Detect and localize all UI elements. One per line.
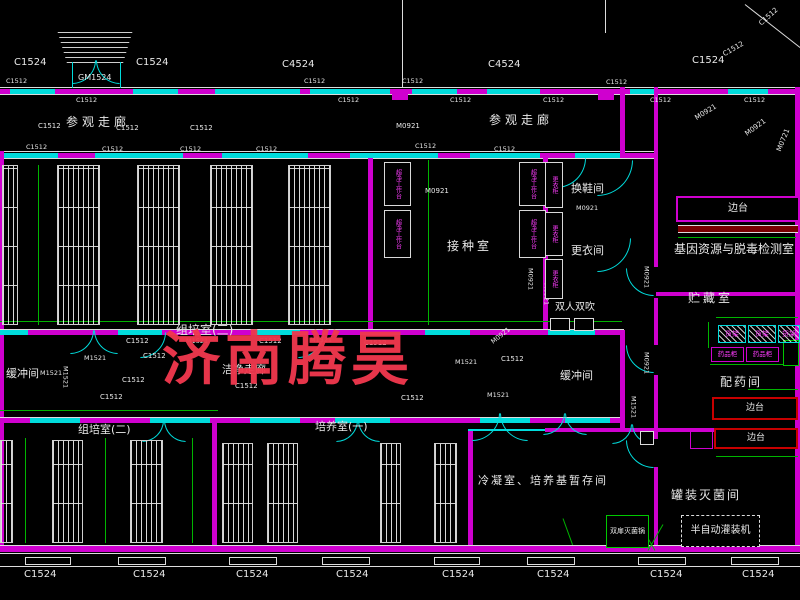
window-sill: [527, 557, 575, 565]
room-culture-1: 培养室(一): [315, 421, 368, 432]
dim-m1521: M1521: [630, 396, 637, 418]
dim-c1512: C1512: [401, 395, 424, 402]
culture-rack: [288, 165, 331, 325]
wall-line: [716, 456, 798, 457]
dim-c1524-3: C1524: [692, 56, 724, 66]
room-dressing: 更衣间: [571, 245, 604, 256]
room-condensing: 冷凝室、培养基暂存间: [478, 475, 608, 486]
room-storage: 贮藏室: [688, 292, 733, 304]
dim-c1512-d1: C1512: [722, 41, 745, 58]
dim-c1512: C1512: [180, 146, 201, 153]
room-canning-sterilization: 罐装灭菌间: [671, 489, 741, 501]
dim-c1524-b: C1524: [537, 570, 569, 580]
dim-c1524-b: C1524: [336, 570, 368, 580]
wall-line: [38, 165, 39, 325]
dim-c1524-b: C1524: [442, 570, 474, 580]
dim-c1524-b: C1524: [742, 570, 774, 580]
culture-rack: [57, 165, 100, 325]
bench-side-table-dispense: 边台: [712, 397, 798, 420]
door-arc: [472, 413, 500, 441]
entrance-canopy: [57, 30, 133, 63]
wall-line: [10, 89, 55, 94]
window-sill: [731, 557, 779, 565]
room-visitor-corridor-2: 参观走廊: [489, 114, 553, 126]
wall-line: [25, 438, 26, 543]
wall-line: [310, 89, 390, 94]
culture-rack: [2, 165, 18, 325]
dim-c1524-2: C1524: [136, 58, 168, 68]
dim-c1512: C1512: [494, 146, 515, 153]
dim-m0921: M0921: [643, 266, 650, 288]
window-sill: [322, 557, 370, 565]
room-dispensing: 配药间: [720, 376, 762, 388]
dim-c1512: C1512: [606, 79, 627, 86]
wall-line: [0, 566, 800, 567]
dim-m0921: M0921: [527, 268, 534, 290]
culture-rack: [210, 165, 253, 325]
door-arc: [500, 413, 528, 441]
watermark-text: 济南腾昊: [162, 330, 414, 388]
equipment-box: [690, 431, 713, 449]
dim-c1512: C1512: [402, 78, 423, 85]
wall-line: [120, 62, 121, 88]
dim-m0921: M0921: [643, 352, 650, 374]
dim-c1524-b: C1524: [133, 570, 165, 580]
dim-c1512: C1512: [650, 97, 671, 104]
room-buffer-right: 缓冲间: [560, 370, 593, 381]
wall-line: [133, 89, 178, 94]
clean-bench: 超净工作台: [519, 210, 546, 258]
dim-c1512: C1512: [450, 97, 471, 104]
shelf-rack-2: 货架: [748, 325, 776, 343]
double-door-sterilizer: 双扉灭菌锅: [606, 515, 649, 548]
bench-side-table-detect: 边台: [676, 196, 800, 222]
wall-line: [350, 153, 438, 158]
locker: 更衣柜: [545, 212, 563, 256]
window-sill: [118, 557, 166, 565]
door-arc: [94, 330, 118, 354]
dim-c1512: C1512: [116, 125, 139, 132]
semi-auto-filling-machine: 半自动灌装机: [681, 515, 760, 547]
culture-rack: [434, 443, 457, 543]
culture-rack: [380, 443, 401, 543]
clean-bench: 超净工作台: [384, 210, 411, 258]
door-arc: [142, 420, 164, 442]
wall-line: [0, 410, 218, 411]
window-sill: [229, 557, 277, 565]
wall-line: [487, 89, 540, 94]
dim-c1512: C1512: [6, 78, 27, 85]
dim-c1524-b: C1524: [24, 570, 56, 580]
clean-bench: 超净工作台: [384, 162, 411, 206]
wall-line: [620, 87, 625, 153]
wall-line: [728, 89, 768, 94]
equipment-box: [640, 431, 654, 445]
dim-c1512: C1512: [338, 97, 359, 104]
wall-line: [222, 153, 308, 158]
bench-side-table-canning: 边台: [714, 428, 798, 449]
dim-m0921: M0921: [425, 188, 449, 195]
dim-c1512: C1512: [38, 123, 61, 130]
door-gm1524: GM1524: [78, 74, 111, 82]
dim-m1521: M1521: [487, 392, 509, 399]
dim-c1512: C1512: [543, 97, 564, 104]
wall-line: [654, 87, 658, 267]
door-arc: [70, 330, 94, 354]
dim-c1512: C1512: [76, 97, 97, 104]
wall-line: [470, 153, 540, 158]
culture-rack: [267, 443, 298, 543]
medicine-cabinet-1: 药品柜: [711, 347, 744, 362]
culture-rack: [0, 440, 13, 543]
wall-line: [605, 0, 606, 33]
wall-line: [620, 330, 625, 430]
locker: 更衣柜: [545, 162, 563, 208]
dim-m1521: M1521: [455, 359, 477, 366]
dim-m0921-d: M0921: [694, 103, 718, 122]
room-inoculation: 接种室: [447, 240, 492, 252]
dim-c1512: C1512: [102, 146, 123, 153]
door-arc: [164, 420, 186, 442]
dim-c1512: C1512: [126, 338, 149, 345]
wall-line: [212, 423, 217, 545]
room-tissue-culture-2: 组培室(二): [78, 424, 131, 435]
dim-c1512: C1512: [100, 394, 123, 401]
wall-line: [0, 153, 58, 158]
dim-c1512: C1512: [744, 97, 765, 104]
equipment-box: [574, 318, 594, 331]
clean-bench: 超净工作台: [519, 162, 546, 206]
dim-m0921: M0921: [396, 123, 420, 130]
equipment-box: [783, 340, 799, 366]
dim-m0721-d: M0721: [776, 128, 791, 153]
dim-c1512: C1512: [190, 125, 213, 132]
dim-c1524-1: C1524: [14, 58, 46, 68]
dim-c1512: C1512: [501, 356, 524, 363]
wall-line: [368, 158, 373, 330]
wall-line: [215, 89, 300, 94]
wall-line: [95, 153, 183, 158]
wall-line: [748, 389, 798, 390]
dim-m1521: M1521: [62, 366, 69, 388]
wall-line: [192, 438, 193, 543]
dim-c1524-b: C1524: [236, 570, 268, 580]
wall-line: [402, 0, 403, 88]
window-sill: [434, 557, 480, 565]
culture-rack: [130, 440, 163, 543]
wall-line: [598, 94, 614, 100]
dim-m1521: M1521: [40, 370, 62, 377]
wall-line: [678, 237, 796, 238]
dim-c1512: C1512: [256, 146, 277, 153]
window-sill: [25, 557, 71, 565]
culture-rack: [52, 440, 83, 543]
wall-line: [412, 89, 457, 94]
dim-c4524-2: C4524: [488, 60, 520, 70]
dim-c1512: C1512: [26, 144, 47, 151]
wall-line: [708, 322, 709, 348]
dim-c4524-1: C4524: [282, 60, 314, 70]
wall-line: [0, 546, 800, 552]
wall-line: [105, 438, 106, 543]
culture-rack: [137, 165, 180, 325]
wall-line: [468, 431, 473, 545]
wall-line: [428, 160, 429, 325]
window-sill: [638, 557, 686, 565]
room-air-shower: 双人双吹: [555, 303, 595, 313]
cad-floor-plan: 济南腾昊 C1524C1524GM1524C4524C4524C1524C151…: [0, 0, 800, 600]
leader-line: [563, 518, 574, 545]
wall-line: [30, 418, 80, 423]
dim-c1512: C1512: [304, 78, 325, 85]
shelf-rack-3: 货架: [778, 325, 800, 343]
wall-line: [392, 94, 408, 100]
dim-m0921-d: M0921: [744, 118, 767, 138]
wall-line: [678, 232, 798, 233]
shelf-rack-1: 货架: [718, 325, 746, 343]
room-shoe-change: 换鞋间: [571, 183, 604, 194]
dim-c1512: C1512: [415, 143, 436, 150]
wall-line: [425, 330, 470, 335]
equipment-box: [550, 318, 570, 331]
room-buffer-left: 缓冲间: [6, 368, 39, 379]
medicine-cabinet-2: 药品柜: [746, 347, 779, 362]
wall-line: [716, 317, 798, 318]
dim-m1521: M1521: [84, 355, 106, 362]
wall-line: [0, 151, 658, 152]
room-gene-detection: 基因资源与脱毒检测室: [674, 243, 794, 255]
wall-line: [0, 330, 28, 335]
culture-rack: [222, 443, 253, 543]
wall-line: [250, 418, 300, 423]
wall-line: [654, 298, 658, 345]
wall-line: [0, 553, 800, 554]
dim-m0921: M0921: [576, 205, 598, 212]
dim-c1512: C1512: [122, 377, 145, 384]
locker: 更衣柜: [545, 259, 563, 299]
dim-c1524-b: C1524: [650, 570, 682, 580]
